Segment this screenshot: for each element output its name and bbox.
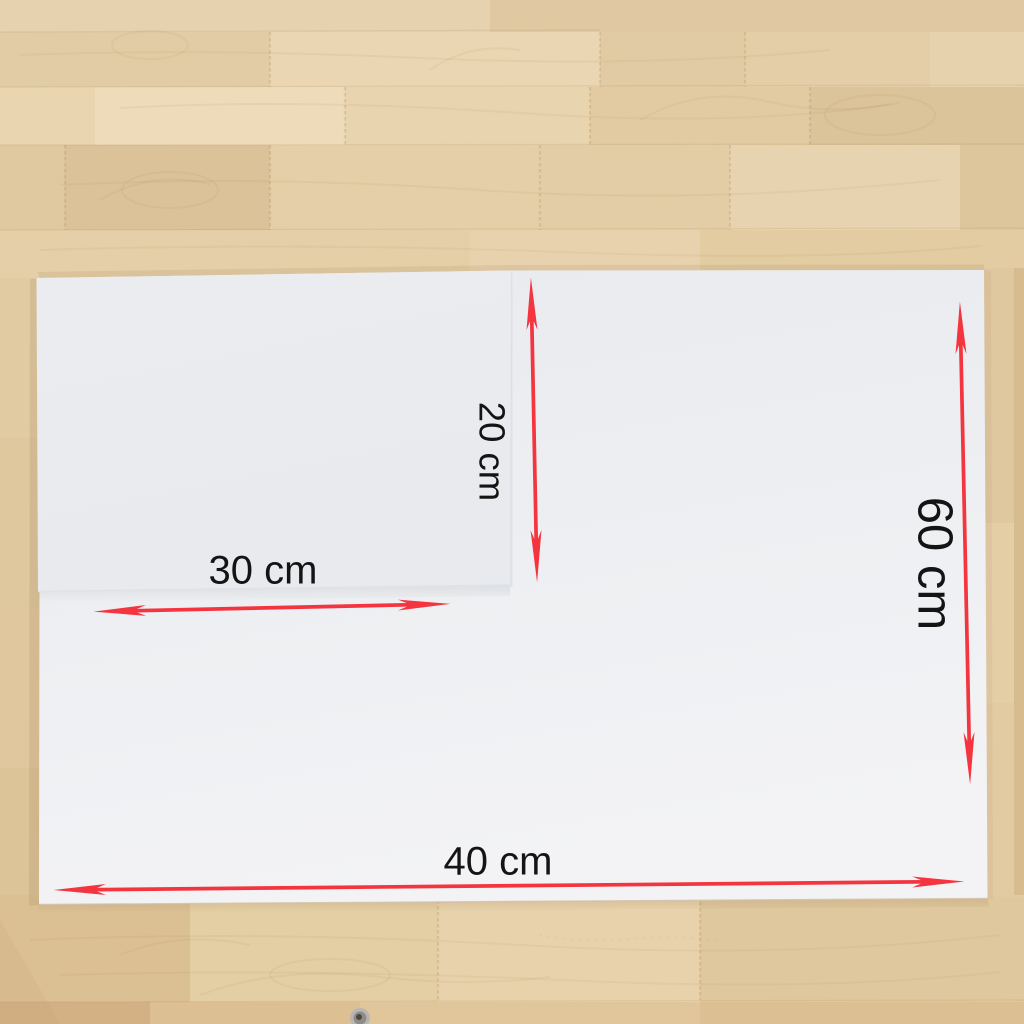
svg-text:60 cm: 60 cm [907,497,961,630]
svg-text:20 cm: 20 cm [472,402,513,501]
svg-text:40 cm: 40 cm [444,840,553,884]
svg-text:30 cm: 30 cm [209,549,318,593]
